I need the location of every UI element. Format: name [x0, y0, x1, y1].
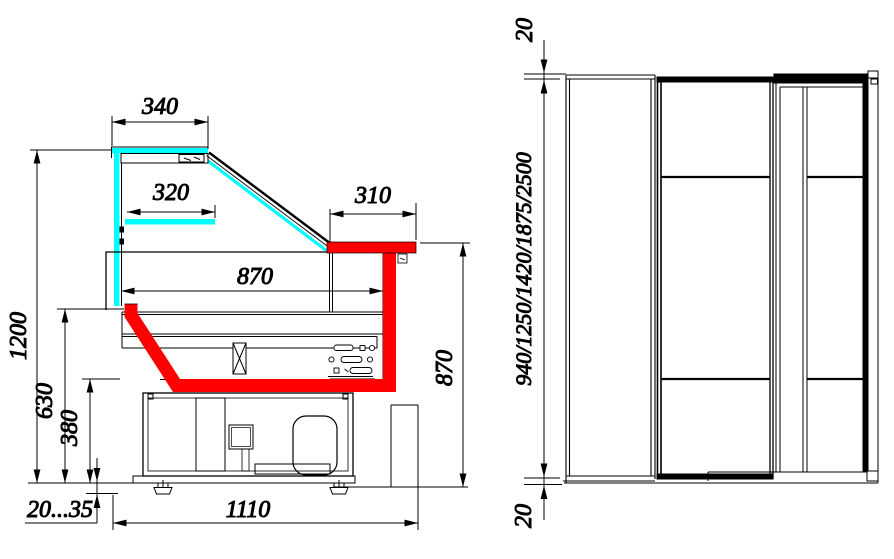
- door-top-rail: [774, 74, 868, 83]
- dim-display-width-label: 870: [237, 264, 273, 290]
- dim-counter-depth-label: 310: [354, 183, 391, 209]
- inner-liner-glass-line: [106, 252, 328, 310]
- front-glass: [114, 150, 120, 306]
- compartment-divider-panel: [196, 398, 225, 471]
- section-view: 340 320 310 870 1200 630 380: [6, 94, 470, 530]
- dim-counter-height-label: 630: [32, 383, 58, 419]
- drain-tray: [255, 464, 330, 474]
- control-panel: [328, 345, 375, 379]
- dim-base-height-label: 380: [57, 410, 83, 447]
- dim-overall-depth-label: 1110: [226, 497, 270, 523]
- slanted-glass: [204, 158, 327, 251]
- condenser-box: [229, 425, 253, 471]
- drawing-svg: 340 320 310 870 1200 630 380: [0, 0, 894, 559]
- door-top-rail: [657, 77, 773, 82]
- support-cross-box: [233, 343, 246, 374]
- canopy-glass: [112, 148, 208, 154]
- glass-elements: [106, 148, 328, 310]
- front-view: 20 940/1250/1420/1875/2500 20: [511, 18, 878, 528]
- door-bottom-rail: [657, 474, 773, 479]
- dim-height-options-label: 940/1250/1420/1875/2500: [511, 152, 536, 385]
- adjustable-foot-front: [154, 480, 172, 494]
- sliding-door-section: [564, 71, 878, 483]
- glass-door-section: [657, 77, 773, 479]
- dim-counter-top-height-label: 870: [432, 350, 458, 386]
- worktop-bracket-detail: [398, 254, 407, 263]
- base-frame: [133, 476, 355, 483]
- dim-bottom-offset-label: 20: [511, 504, 537, 528]
- door-stile: [863, 83, 867, 472]
- dim-foot-adjustment-label: 20...35: [27, 497, 93, 523]
- worktop-counter: [327, 242, 416, 253]
- technical-drawing-canvas: 340 320 310 870 1200 630 380: [0, 0, 894, 559]
- dim-top-offset-label: 20: [512, 18, 538, 42]
- slanted-glass-frame: [207, 153, 334, 249]
- front-dimensions: 20 940/1250/1420/1875/2500 20: [511, 18, 566, 528]
- dim-canopy-width-label: 340: [141, 94, 178, 120]
- dim-shelf-width-label: 320: [152, 180, 189, 206]
- dim-overall-height-label: 1200: [6, 312, 32, 360]
- shelf-glass: [125, 219, 215, 225]
- canopy-hinge-detail: [179, 155, 204, 163]
- side-panel: [563, 75, 655, 483]
